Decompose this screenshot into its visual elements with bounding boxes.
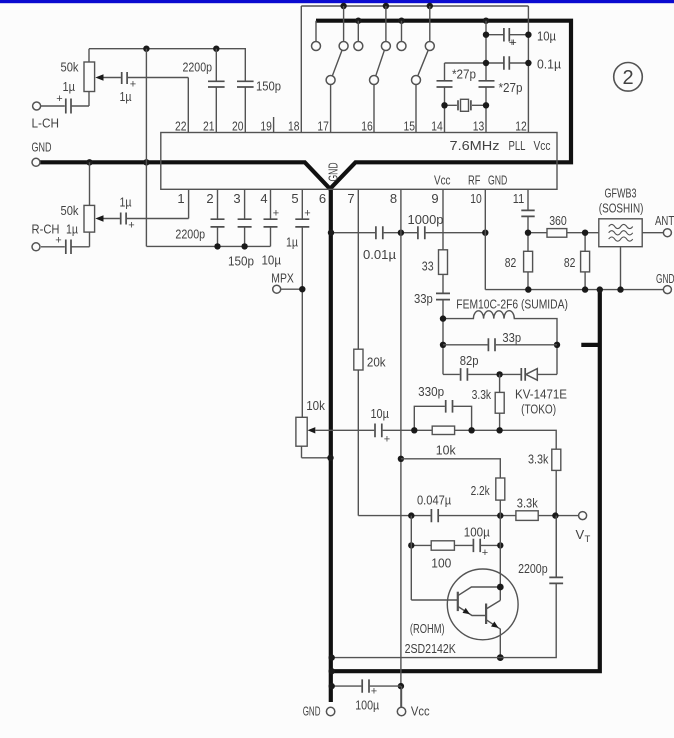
svg-text:Vcc: Vcc xyxy=(534,138,551,153)
svg-text:Vcc: Vcc xyxy=(411,704,430,719)
svg-text:+: + xyxy=(384,433,390,445)
svg-text:20k: 20k xyxy=(367,355,386,370)
svg-text:(ROHM): (ROHM) xyxy=(410,621,445,636)
svg-text:V: V xyxy=(576,527,585,542)
svg-text:10: 10 xyxy=(470,191,482,206)
svg-text:8: 8 xyxy=(390,191,397,206)
svg-text:6: 6 xyxy=(319,191,326,206)
svg-text:1µ: 1µ xyxy=(120,89,132,104)
svg-text:GND: GND xyxy=(656,271,674,286)
svg-text:9: 9 xyxy=(431,191,438,206)
svg-text:GFWB3: GFWB3 xyxy=(605,186,637,201)
svg-text:T: T xyxy=(585,534,591,545)
svg-text:(TOKO): (TOKO) xyxy=(521,401,556,416)
svg-text:13: 13 xyxy=(473,119,485,134)
svg-text:MPX: MPX xyxy=(271,271,294,286)
svg-text:+: + xyxy=(482,547,488,559)
svg-text:GND: GND xyxy=(32,140,52,155)
svg-text:+: + xyxy=(273,208,279,220)
svg-text:+: + xyxy=(56,93,62,105)
svg-text:*27p: *27p xyxy=(452,67,476,82)
svg-text:19: 19 xyxy=(260,119,272,134)
svg-text:2: 2 xyxy=(622,67,633,89)
svg-text:3.3k: 3.3k xyxy=(528,452,549,467)
svg-text:2200p: 2200p xyxy=(183,60,213,75)
svg-text:10µ: 10µ xyxy=(262,253,282,268)
svg-text:1µ: 1µ xyxy=(286,235,298,250)
svg-text:12: 12 xyxy=(515,119,527,134)
svg-text:2.2k: 2.2k xyxy=(471,483,490,498)
svg-text:50k: 50k xyxy=(61,203,79,218)
svg-text:Vcc: Vcc xyxy=(434,173,451,188)
svg-text:1: 1 xyxy=(177,191,184,206)
svg-text:33: 33 xyxy=(422,259,434,274)
svg-text:GND: GND xyxy=(303,704,321,719)
svg-text:17: 17 xyxy=(317,119,329,134)
svg-text:2200p: 2200p xyxy=(175,227,205,242)
svg-text:10k: 10k xyxy=(436,443,456,458)
svg-text:+: + xyxy=(128,219,134,231)
svg-text:4: 4 xyxy=(260,191,267,206)
svg-text:22: 22 xyxy=(175,119,187,134)
svg-text:0.047µ: 0.047µ xyxy=(417,492,452,507)
svg-text:1µ: 1µ xyxy=(66,221,78,236)
svg-text:82p: 82p xyxy=(460,353,479,368)
svg-text:100µ: 100µ xyxy=(464,524,490,539)
svg-text:(SOSHIN): (SOSHIN) xyxy=(599,200,644,215)
svg-text:1µ: 1µ xyxy=(63,79,76,94)
svg-text:3: 3 xyxy=(233,191,240,206)
svg-text:150p: 150p xyxy=(256,78,281,93)
svg-text:PLL: PLL xyxy=(509,138,526,153)
svg-text:21: 21 xyxy=(203,119,215,134)
svg-text:+: + xyxy=(130,78,136,90)
svg-text:2: 2 xyxy=(206,191,213,206)
svg-text:*27p: *27p xyxy=(499,80,523,95)
svg-text:3.3k: 3.3k xyxy=(472,387,492,402)
svg-text:L-CH: L-CH xyxy=(32,116,60,131)
svg-text:18: 18 xyxy=(288,119,300,134)
svg-text:+: + xyxy=(371,685,377,697)
svg-text:50k: 50k xyxy=(61,60,79,75)
svg-text:3.3k: 3.3k xyxy=(517,495,538,510)
svg-text:2200p: 2200p xyxy=(518,561,548,576)
svg-text:ANT: ANT xyxy=(655,213,674,228)
svg-text:16: 16 xyxy=(361,119,373,134)
svg-text:15: 15 xyxy=(404,119,416,134)
svg-text:33p: 33p xyxy=(414,291,433,306)
svg-text:360: 360 xyxy=(549,213,567,228)
svg-text:14: 14 xyxy=(431,119,443,134)
svg-text:1µ: 1µ xyxy=(120,195,132,210)
svg-text:10µ: 10µ xyxy=(371,406,390,421)
svg-text:7.6MHz: 7.6MHz xyxy=(450,138,500,153)
svg-text:82: 82 xyxy=(564,255,576,270)
svg-text:5: 5 xyxy=(291,191,298,206)
svg-text:10µ: 10µ xyxy=(537,29,556,44)
svg-text:20: 20 xyxy=(232,119,244,134)
svg-text:+: + xyxy=(304,208,310,220)
svg-text:100µ: 100µ xyxy=(355,698,379,713)
svg-text:7: 7 xyxy=(347,191,354,206)
svg-text:GND: GND xyxy=(326,163,341,182)
svg-text:150p: 150p xyxy=(228,254,254,269)
svg-text:33p: 33p xyxy=(502,330,521,345)
svg-text:0.01µ: 0.01µ xyxy=(363,247,397,262)
svg-text:1000p: 1000p xyxy=(408,212,444,227)
svg-text:KV-1471E: KV-1471E xyxy=(515,386,567,401)
svg-text:330p: 330p xyxy=(418,384,444,399)
svg-text:RF: RF xyxy=(468,173,481,188)
svg-text:GND: GND xyxy=(488,173,507,188)
svg-text:10k: 10k xyxy=(306,398,325,413)
svg-text:82: 82 xyxy=(505,255,517,270)
svg-text:0.1µ: 0.1µ xyxy=(537,57,561,72)
svg-text:2SD2142K: 2SD2142K xyxy=(405,641,456,656)
svg-text:+: + xyxy=(55,234,61,246)
svg-text:+: + xyxy=(509,37,515,49)
svg-text:11: 11 xyxy=(513,191,525,206)
svg-text:100: 100 xyxy=(431,556,451,571)
svg-text:FEM10C-2F6 (SUMIDA): FEM10C-2F6 (SUMIDA) xyxy=(456,297,568,311)
